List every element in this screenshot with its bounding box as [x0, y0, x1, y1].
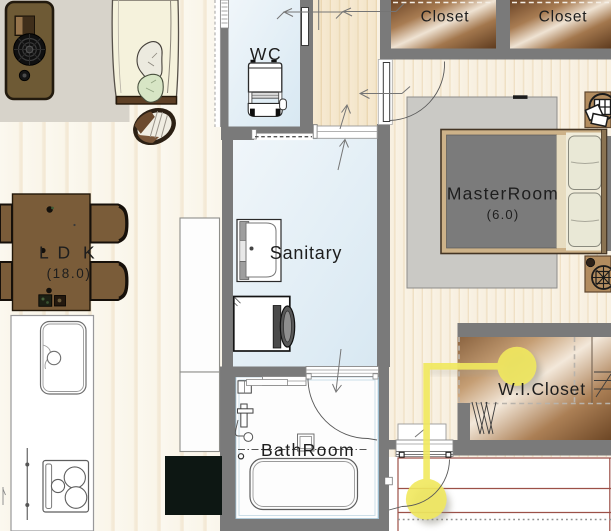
svg-text:BathRoom: BathRoom: [261, 440, 355, 460]
svg-text:Sanitary: Sanitary: [270, 243, 342, 263]
svg-text:Closet: Closet: [539, 9, 588, 26]
svg-text:LDK: LDK: [39, 243, 95, 263]
svg-text:WC: WC: [250, 44, 282, 64]
svg-text:(18.0): (18.0): [47, 266, 92, 281]
svg-text:(6.0): (6.0): [487, 207, 520, 222]
svg-text:Closet: Closet: [421, 9, 470, 26]
svg-text:W.I.Closet: W.I.Closet: [498, 379, 586, 399]
svg-text:MasterRoom: MasterRoom: [447, 184, 559, 204]
